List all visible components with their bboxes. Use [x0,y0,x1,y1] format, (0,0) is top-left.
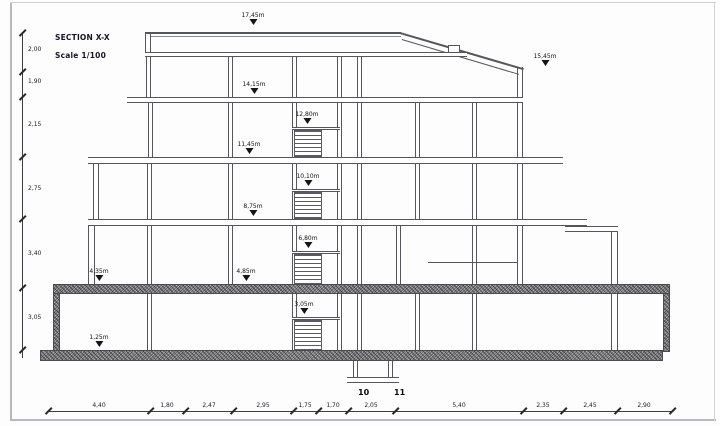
ground-slab [53,284,670,294]
level-label: 17,45m [241,12,264,19]
right-retaining-wall [663,292,670,352]
level-triangle-icon [304,242,312,248]
level-triangle-icon [95,275,103,281]
level-triangle-icon [249,210,257,216]
ground-column [337,226,342,284]
stair-flight [294,320,322,350]
dim-bottom-label: 2,95 [256,402,269,409]
floor4-left-wall [148,103,153,157]
basement-column [147,294,152,350]
window-sill-line [428,262,517,263]
level-triangle-icon [242,275,250,281]
frame-left [10,2,12,421]
dim-left-label: 2,00 [28,46,41,53]
dim-left-label: 2,75 [28,185,41,192]
annex-right-wall [611,226,618,284]
level-triangle-icon [249,19,257,25]
level-label: 12,80m [295,111,318,118]
dimension-line-bottom [48,411,672,412]
level-marker-landing-3-2: 10,10m [296,173,319,186]
floor4-column [228,103,233,157]
level-label: 4,35m [89,268,108,275]
basement-column [415,294,420,350]
drawing-sheet: SECTION X-X Scale 1/100 [0,0,720,426]
parapet-top-line [145,32,401,34]
floor3-column [147,164,152,219]
level-marker-landing-2-g: 6,80m [298,235,317,248]
ground-column [396,226,401,284]
dim-tick [669,407,676,414]
attic-column [228,57,233,97]
floor4-slab [127,97,523,103]
level-label: 6,80m [298,235,317,242]
level-label: 4,85m [236,268,255,275]
floor2-slab [88,219,587,226]
dim-bottom-label: 1,80 [160,402,173,409]
level-triangle-icon [250,88,258,94]
scale-label: Scale 1/100 [55,51,106,60]
dim-left-label: 3,40 [28,250,41,257]
section-title: SECTION X-X [55,33,110,42]
level-marker-roof-right: 15,45m [533,53,556,66]
level-marker-parapet: 17,45m [241,12,264,25]
floor4-column [357,103,362,157]
level-triangle-icon [303,118,311,124]
floor3-slab [88,157,563,164]
level-label: 10,10m [296,173,319,180]
basement-column [357,294,362,350]
level-marker-floor4: 14,15m [242,81,265,94]
dim-bottom-label: 1,70 [326,402,339,409]
attic-column [292,57,297,97]
level-marker-floor2: 8,75m [243,203,262,216]
floor3-column [472,164,477,219]
frame-bottom [10,419,716,421]
stair-flight [294,130,322,157]
floor4-column [472,103,477,157]
dim-bottom-label: 2,35 [536,402,549,409]
annex-roof-slab [565,226,618,232]
level-marker-basement: 1,25m [89,334,108,347]
floor3-left-wall [93,164,99,219]
dim-bottom-label: 2,05 [364,402,377,409]
ground-column [357,226,362,284]
level-label: 15,45m [533,53,556,60]
frame-top [10,2,716,3]
pit-bottom-slab [347,377,399,383]
level-triangle-icon [300,308,308,314]
ground-column [147,226,152,284]
ground-column [472,226,477,284]
basement-column [472,294,477,350]
level-marker-grade: 4,35m [89,268,108,281]
dim-left-label: 2,15 [28,121,41,128]
level-label: 14,15m [242,81,265,88]
level-label: 3,05m [294,301,313,308]
level-triangle-icon [541,60,549,66]
dim-bottom-label: 4,40 [92,402,105,409]
grid-bubble-10: 10 [358,388,369,397]
annex-right-basement-wall [611,294,618,350]
floor4-column [415,103,420,157]
frame-right [714,2,715,421]
floor3-column [228,164,233,219]
dim-bottom-label: 5,40 [452,402,465,409]
level-label: 8,75m [243,203,262,210]
stair-flight [294,192,322,219]
floor3-column [415,164,420,219]
roof-slab [145,52,467,57]
dim-left-label: 3,05 [28,314,41,321]
dim-bottom-label: 2,90 [637,402,650,409]
ground-column [228,226,233,284]
level-marker-floor3: 11,45m [237,141,260,154]
attic-column [357,57,362,97]
floor3-column [357,164,362,219]
stair-flight [294,254,322,284]
level-triangle-icon [95,341,103,347]
dim-bottom-label: 2,47 [202,402,215,409]
level-marker-ground: 4,85m [236,268,255,281]
level-triangle-icon [304,180,312,186]
level-label: 11,45m [237,141,260,148]
level-marker-landing-basement: 3,05m [294,301,313,314]
basement-column [337,294,342,350]
dim-bottom-label: 2,45 [583,402,596,409]
drawing-title: SECTION X-X Scale 1/100 [55,24,110,60]
floor4-column [337,103,342,157]
attic-left-wall [146,57,151,97]
level-label: 1,25m [89,334,108,341]
dim-left-label: 1,90 [28,78,41,85]
parapet-inner-line [151,36,401,37]
level-marker-landing-4-3: 12,80m [295,111,318,124]
grid-bubble-11: 11 [394,388,405,397]
dimension-line-left [22,33,23,358]
dim-bottom-label: 1,75 [298,402,311,409]
level-triangle-icon [245,148,253,154]
attic-column [337,57,342,97]
foundation-slab [40,350,663,361]
left-retaining-wall [53,284,60,352]
